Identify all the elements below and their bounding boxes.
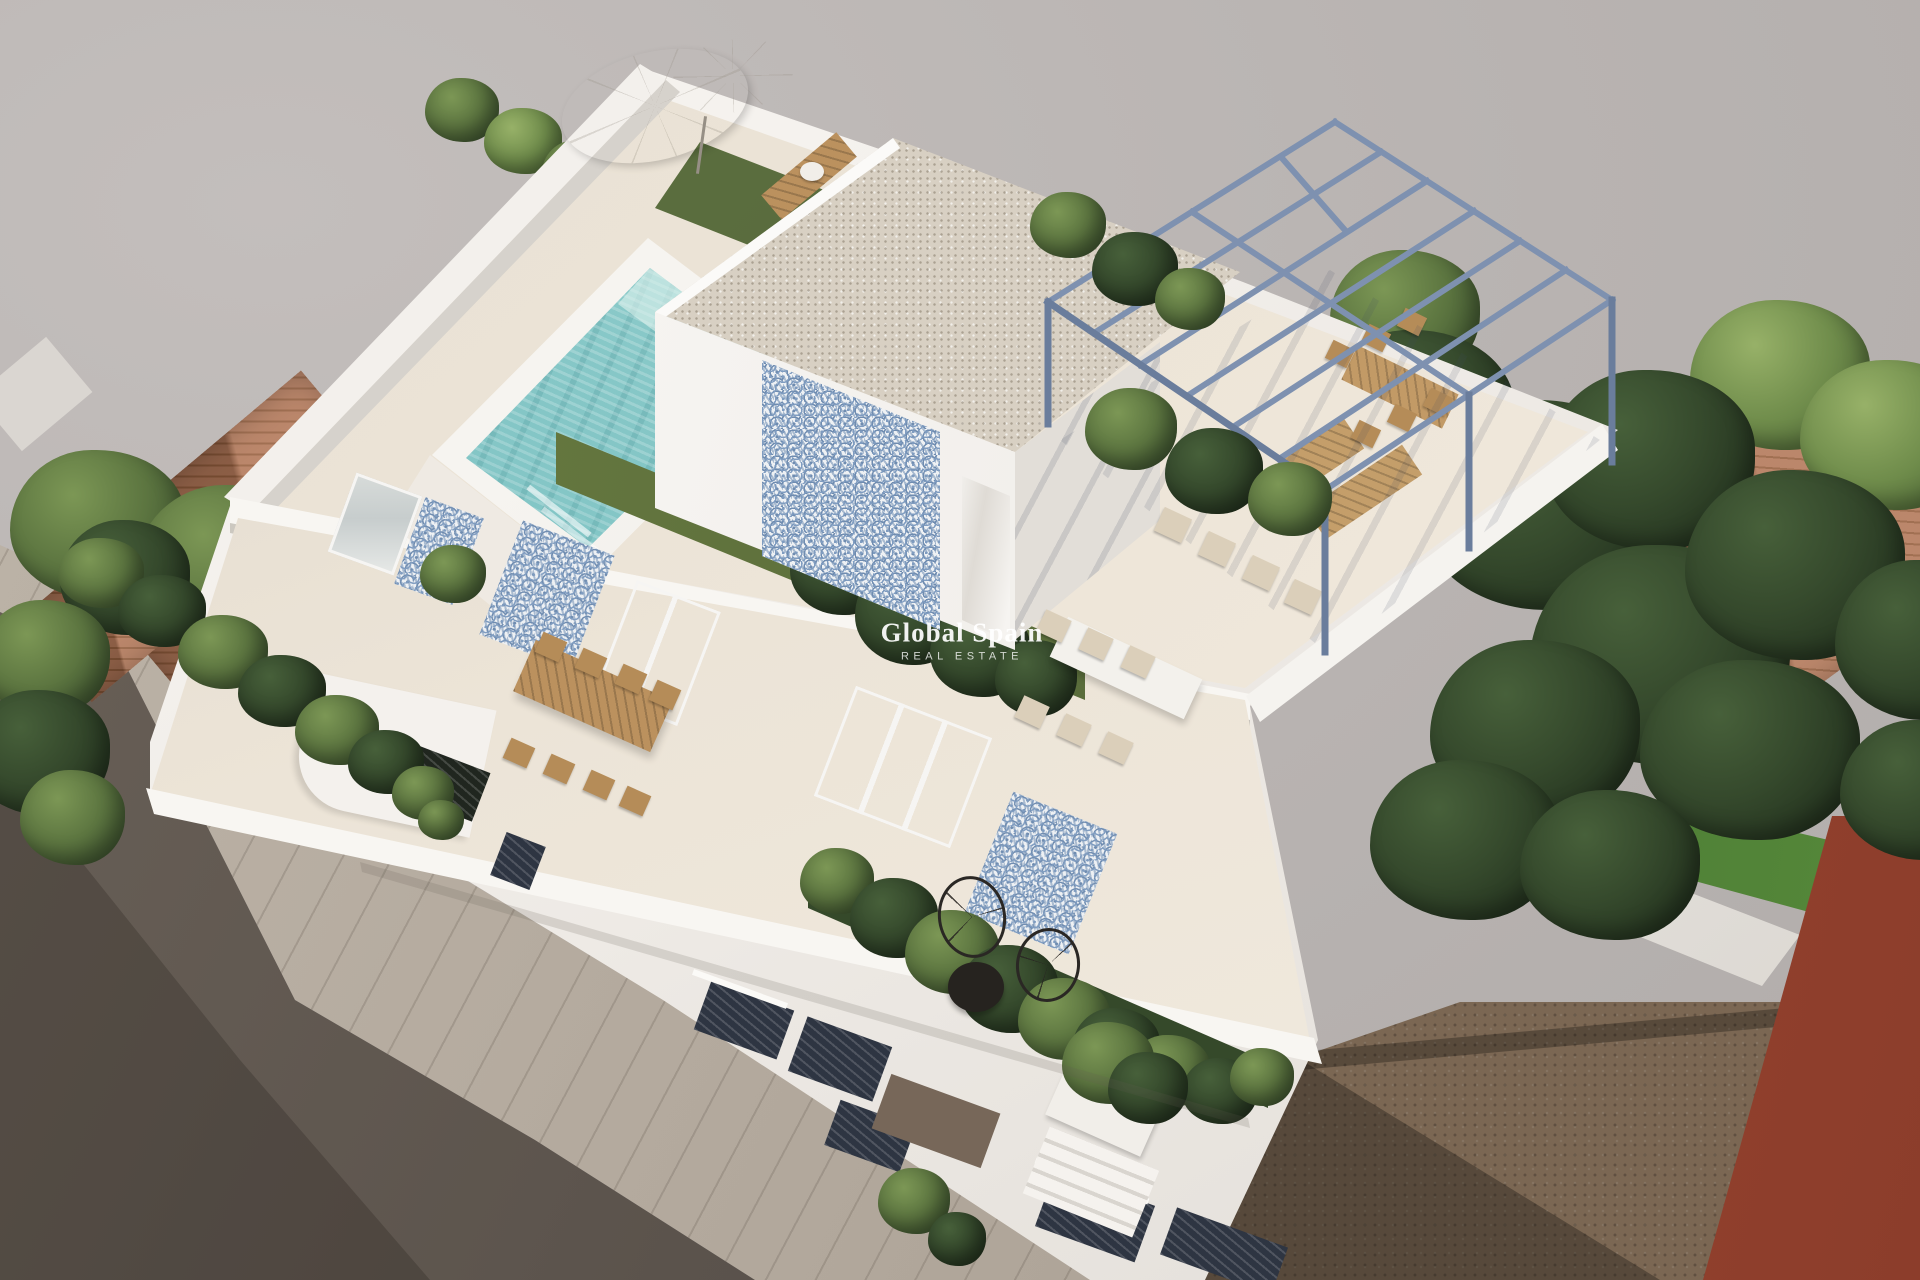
bush-behind-box — [1030, 192, 1106, 258]
facade-plant — [928, 1212, 986, 1266]
watermark: Global Spain REAL ESTATE — [881, 618, 1044, 663]
tree — [1520, 790, 1700, 940]
watermark-subtitle: REAL ESTATE — [881, 651, 1044, 663]
small-wall-left-edge — [0, 337, 92, 451]
render-canvas: Global Spain REAL ESTATE — [0, 0, 1920, 1280]
hedge — [418, 800, 464, 840]
pergola-vine — [1085, 388, 1177, 470]
tree — [20, 770, 125, 865]
round-table-black — [948, 962, 1004, 1012]
watermark-title: Global Spain — [881, 618, 1044, 649]
pergola-vine — [1248, 462, 1332, 536]
bush-behind-box — [1155, 268, 1225, 330]
side-table — [800, 162, 824, 181]
banana-plant — [1230, 1048, 1294, 1106]
terrace-plant — [420, 545, 486, 603]
